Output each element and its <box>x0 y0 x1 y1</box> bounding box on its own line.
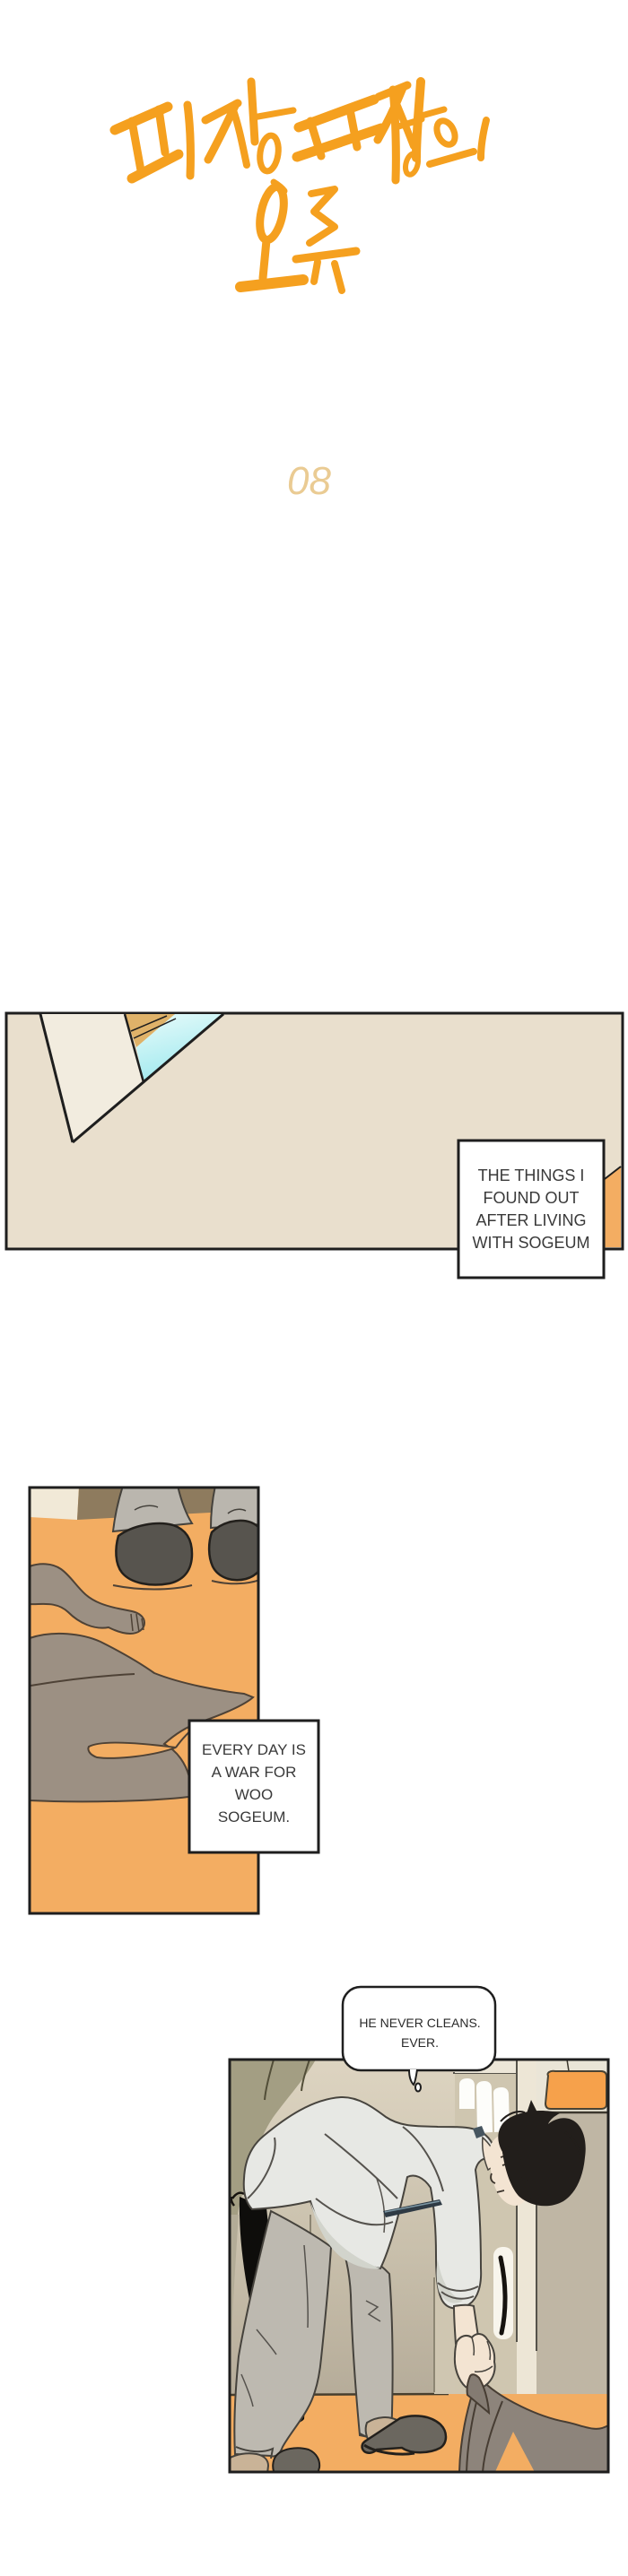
svg-text:EVERY DAY IS: EVERY DAY IS <box>202 1741 306 1758</box>
svg-text:WOO: WOO <box>235 1786 274 1803</box>
svg-text:FOUND OUT: FOUND OUT <box>484 1189 580 1207</box>
svg-text:THE THINGS I: THE THINGS I <box>478 1167 585 1184</box>
svg-text:A WAR FOR: A WAR FOR <box>212 1764 297 1781</box>
svg-text:08: 08 <box>287 459 331 503</box>
svg-text:AFTER LIVING: AFTER LIVING <box>475 1211 586 1229</box>
svg-text:HE NEVER CLEANS.: HE NEVER CLEANS. <box>359 2016 480 2030</box>
svg-text:SOGEUM.: SOGEUM. <box>218 1808 290 1826</box>
svg-text:WITH SOGEUM: WITH SOGEUM <box>473 1234 590 1252</box>
svg-text:EVER.: EVER. <box>401 2035 439 2050</box>
